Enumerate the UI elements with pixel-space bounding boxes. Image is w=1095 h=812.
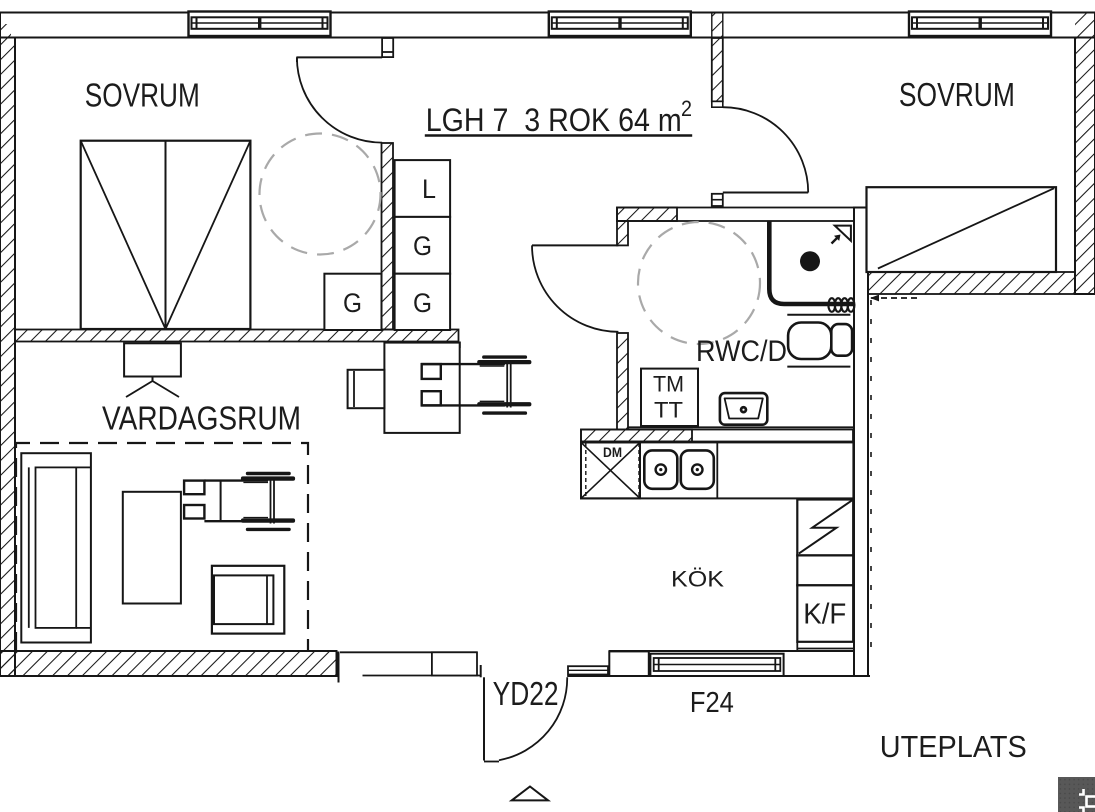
svg-text:DM: DM bbox=[603, 444, 622, 460]
svg-text:G: G bbox=[413, 231, 432, 261]
svg-text:KÖK: KÖK bbox=[671, 567, 724, 592]
svg-text:K/F: K/F bbox=[803, 599, 846, 631]
svg-text:SOVRUM: SOVRUM bbox=[899, 76, 1015, 113]
svg-text:YD22: YD22 bbox=[493, 675, 559, 712]
svg-text:G: G bbox=[413, 288, 432, 318]
svg-text:LGH 7 3 ROK 64 m: LGH 7 3 ROK 64 m bbox=[426, 102, 682, 138]
svg-text:VARDAGSRUM: VARDAGSRUM bbox=[102, 400, 301, 437]
svg-text:G: G bbox=[343, 288, 362, 318]
svg-text:SOVRUM: SOVRUM bbox=[85, 77, 200, 114]
svg-text:RWC/D: RWC/D bbox=[696, 335, 787, 368]
svg-text:TM: TM bbox=[653, 372, 684, 397]
svg-text:UTEPLATS: UTEPLATS bbox=[880, 729, 1027, 764]
svg-text:TT: TT bbox=[654, 398, 683, 423]
svg-text:F24: F24 bbox=[690, 687, 734, 719]
svg-text:L: L bbox=[422, 174, 436, 204]
svg-text:2: 2 bbox=[681, 96, 692, 121]
